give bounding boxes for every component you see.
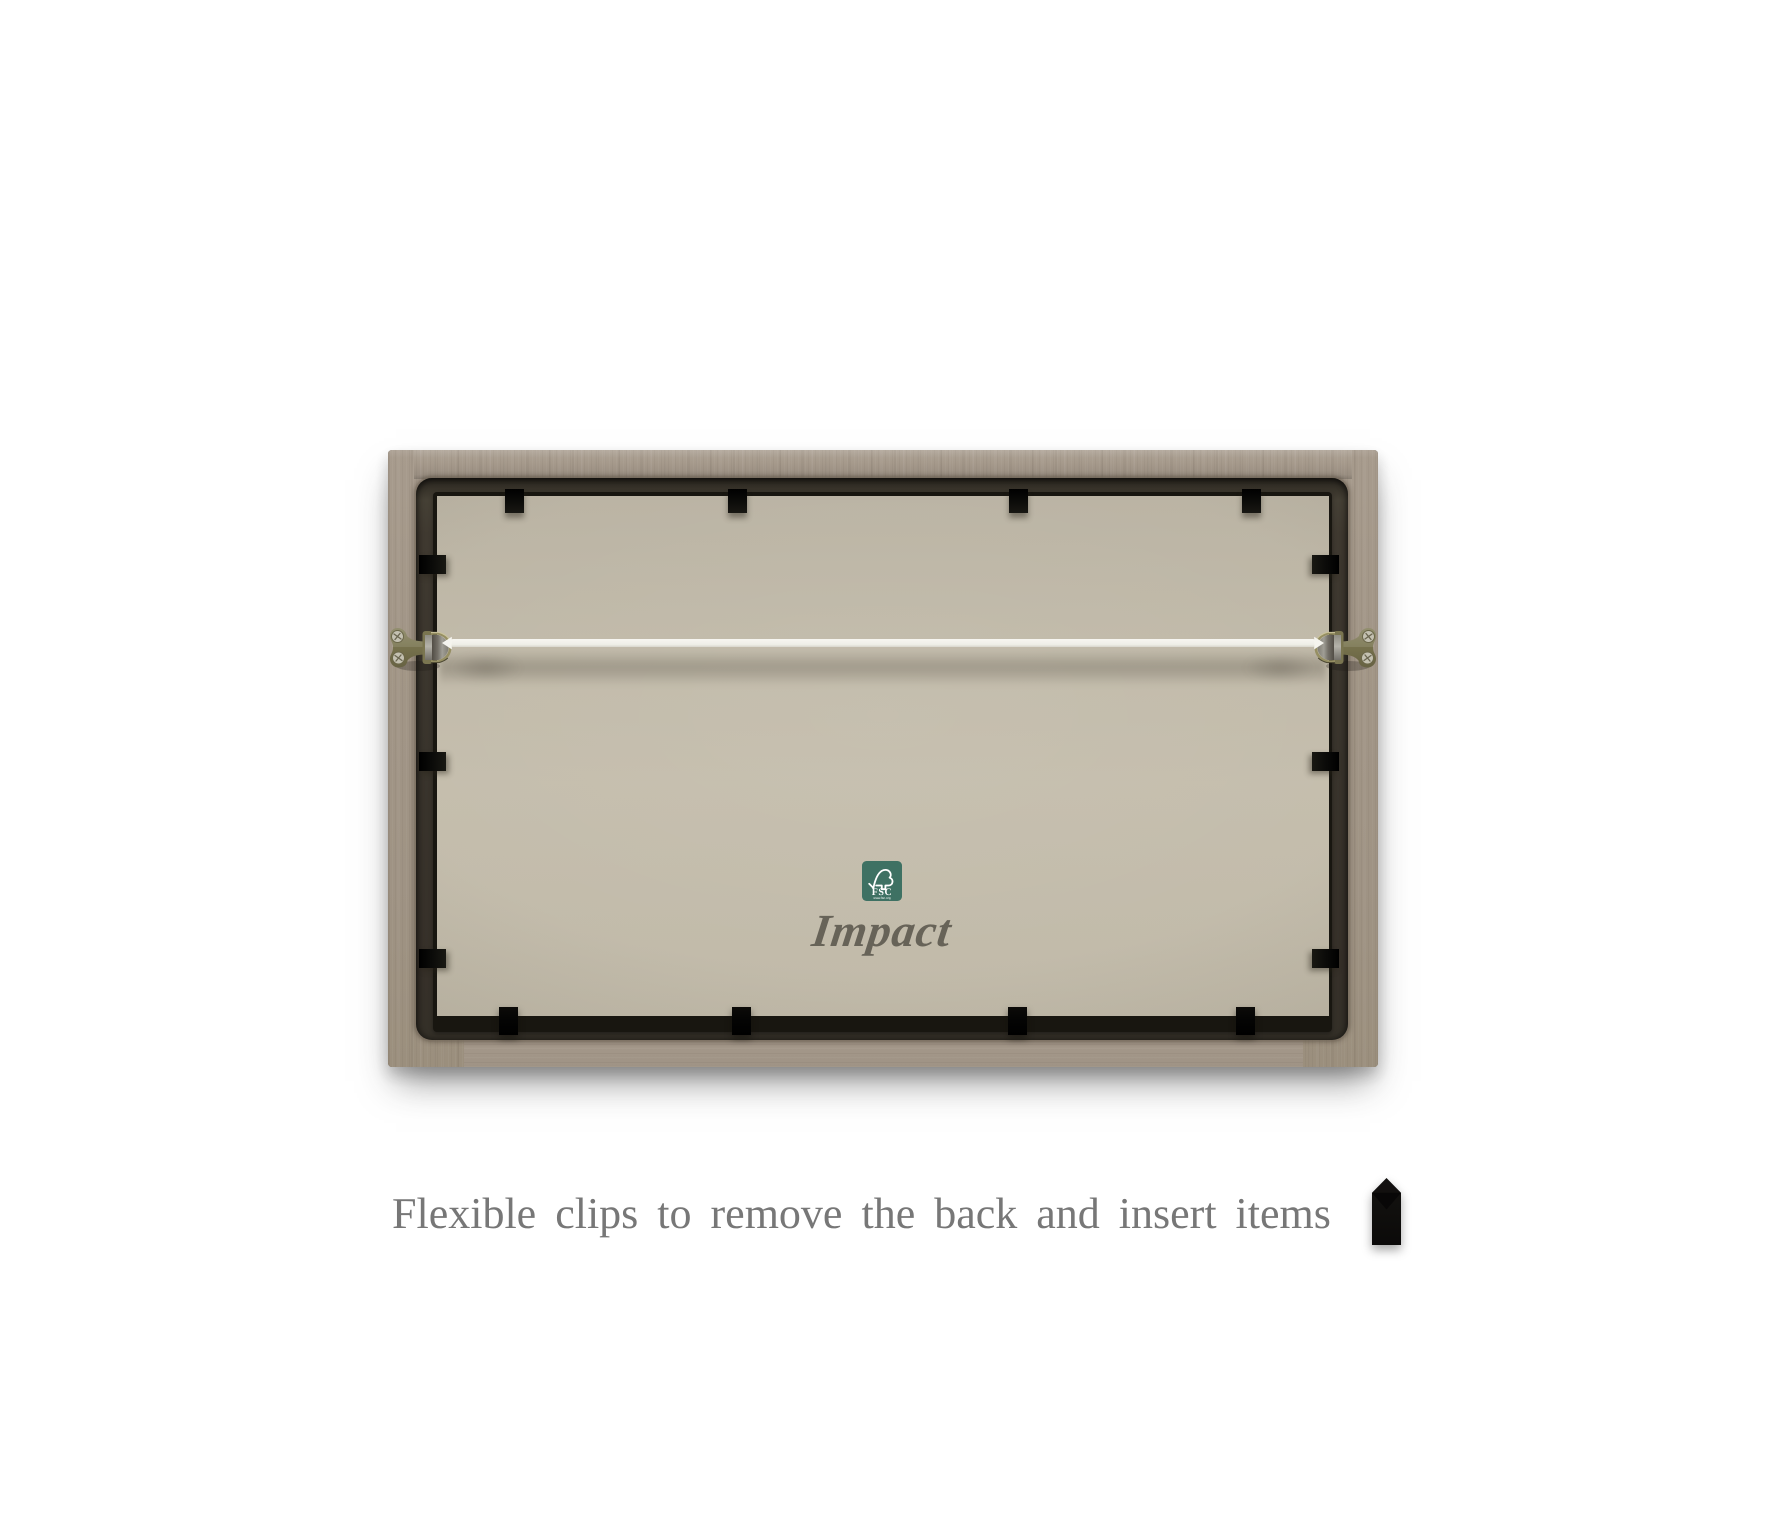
svg-text:www.fsc.org: www.fsc.org (873, 896, 890, 900)
